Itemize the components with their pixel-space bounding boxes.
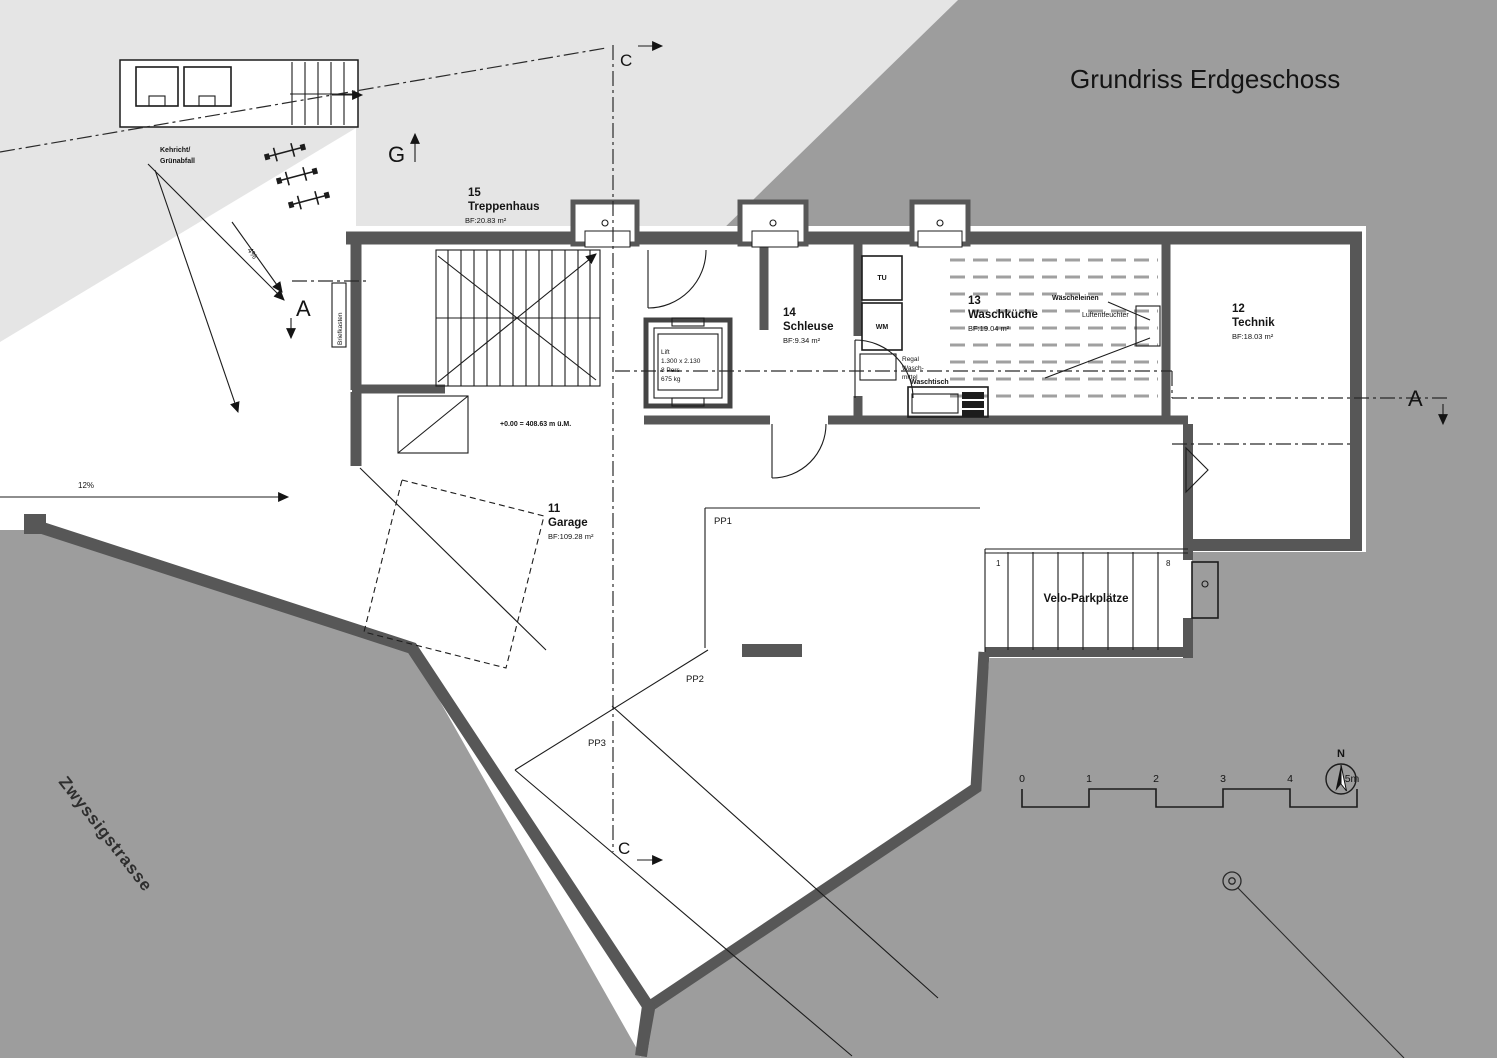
wall-street-cap (24, 514, 46, 534)
room-garage-number: 11 (548, 503, 561, 515)
room-treppenhaus-name: Treppenhaus (468, 201, 540, 213)
lift-label-2: 1.300 x 2.130 (661, 358, 701, 365)
room-garage-area: BF:109.28 m² (548, 532, 594, 541)
north-label: N (1337, 748, 1345, 760)
tumbler-label: TU (877, 275, 886, 282)
wheel-stop (742, 644, 802, 657)
lift: Lift 1.300 x 2.130 8 Pers 675 kg (646, 318, 730, 406)
scale-tick-1: 1 (1086, 773, 1092, 785)
room-treppenhaus-area: BF:20.83 m² (465, 216, 507, 225)
room-waschkueche-area: BF:19.04 m² (968, 324, 1010, 333)
room-technik-area: BF:18.03 m² (1232, 332, 1274, 341)
door-gap-1 (585, 231, 630, 247)
lift-label-1: Lift (661, 349, 670, 356)
door-gap-3 (918, 231, 962, 247)
washbasin-drawer (962, 410, 984, 417)
pp1-label: PP1 (714, 516, 732, 527)
room-waschkueche-number: 13 (968, 295, 981, 307)
section-letter-g: G (388, 142, 405, 167)
lift-label-4: 675 kg (661, 376, 681, 383)
washbasin-label: Waschtisch (910, 379, 949, 386)
room-garage-name: Garage (548, 517, 588, 529)
waste-label-1: Kehricht/ (160, 147, 190, 154)
room-treppenhaus-number: 15 (468, 187, 481, 199)
mailbox-label: Briefkasten (337, 312, 344, 345)
pp3-label: PP3 (588, 738, 606, 749)
washbasin-drawer (962, 392, 984, 399)
room-technik-name: Technik (1232, 317, 1275, 329)
pp2-label: PP2 (686, 674, 704, 685)
section-letter-a-left: A (296, 296, 311, 321)
floor-plan-svg: Lift 1.300 x 2.130 8 Pers 675 kg TU WM R… (0, 0, 1497, 1058)
scale-tick-3: 3 (1220, 773, 1226, 785)
section-letter-c-bottom: C (618, 839, 630, 858)
scale-tick-4: 4 (1287, 773, 1293, 785)
level-annotation: +0.00 = 408.63 m ü.M. (500, 421, 571, 428)
door-gap-2 (752, 231, 798, 247)
section-letter-c-top: C (620, 51, 632, 70)
velo-number-last: 8 (1166, 559, 1171, 568)
velo-label: Velo-Parkplätze (1043, 593, 1128, 605)
shelf-label-1: Regal (902, 356, 920, 363)
page-title: Grundriss Erdgeschoss (1070, 64, 1340, 94)
washbasin-drawer (962, 401, 984, 408)
room-schleuse-area: BF:9.34 m² (783, 336, 821, 345)
room-schleuse-name: Schleuse (783, 321, 834, 333)
ramp-slope-label: 12% (78, 481, 94, 490)
scale-tick-5: 5m (1345, 773, 1360, 785)
room-waschkueche-name: Waschküche (968, 309, 1038, 321)
scale-tick-0: 0 (1019, 773, 1025, 785)
section-letter-a-right: A (1408, 386, 1423, 411)
room-technik-number: 12 (1232, 303, 1245, 315)
floor-plan-page: Lift 1.300 x 2.130 8 Pers 675 kg TU WM R… (0, 0, 1497, 1058)
room-schleuse-number: 14 (783, 307, 796, 319)
clothes-lines-label: Wäscheleinen (1052, 295, 1099, 302)
scale-tick-2: 2 (1153, 773, 1159, 785)
waste-label-2: Grünabfall (160, 158, 195, 165)
dehumidifier-label: Luftentfeuchter (1082, 312, 1129, 319)
washer-label: WM (876, 324, 889, 331)
velo-number-first: 1 (996, 559, 1001, 568)
